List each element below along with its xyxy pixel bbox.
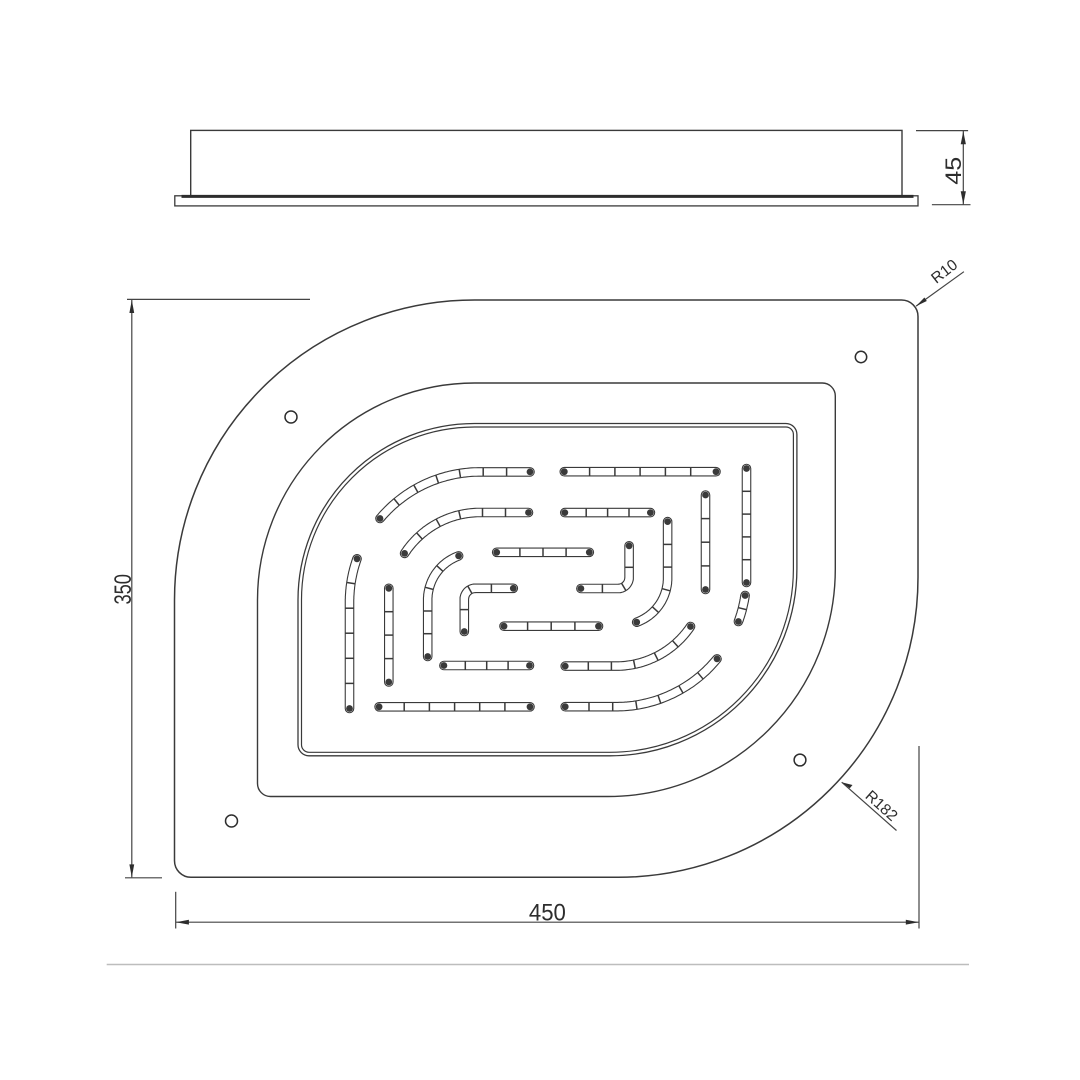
svg-text:350: 350 (110, 574, 137, 605)
svg-text:450: 450 (529, 900, 566, 927)
svg-text:45: 45 (941, 157, 966, 185)
